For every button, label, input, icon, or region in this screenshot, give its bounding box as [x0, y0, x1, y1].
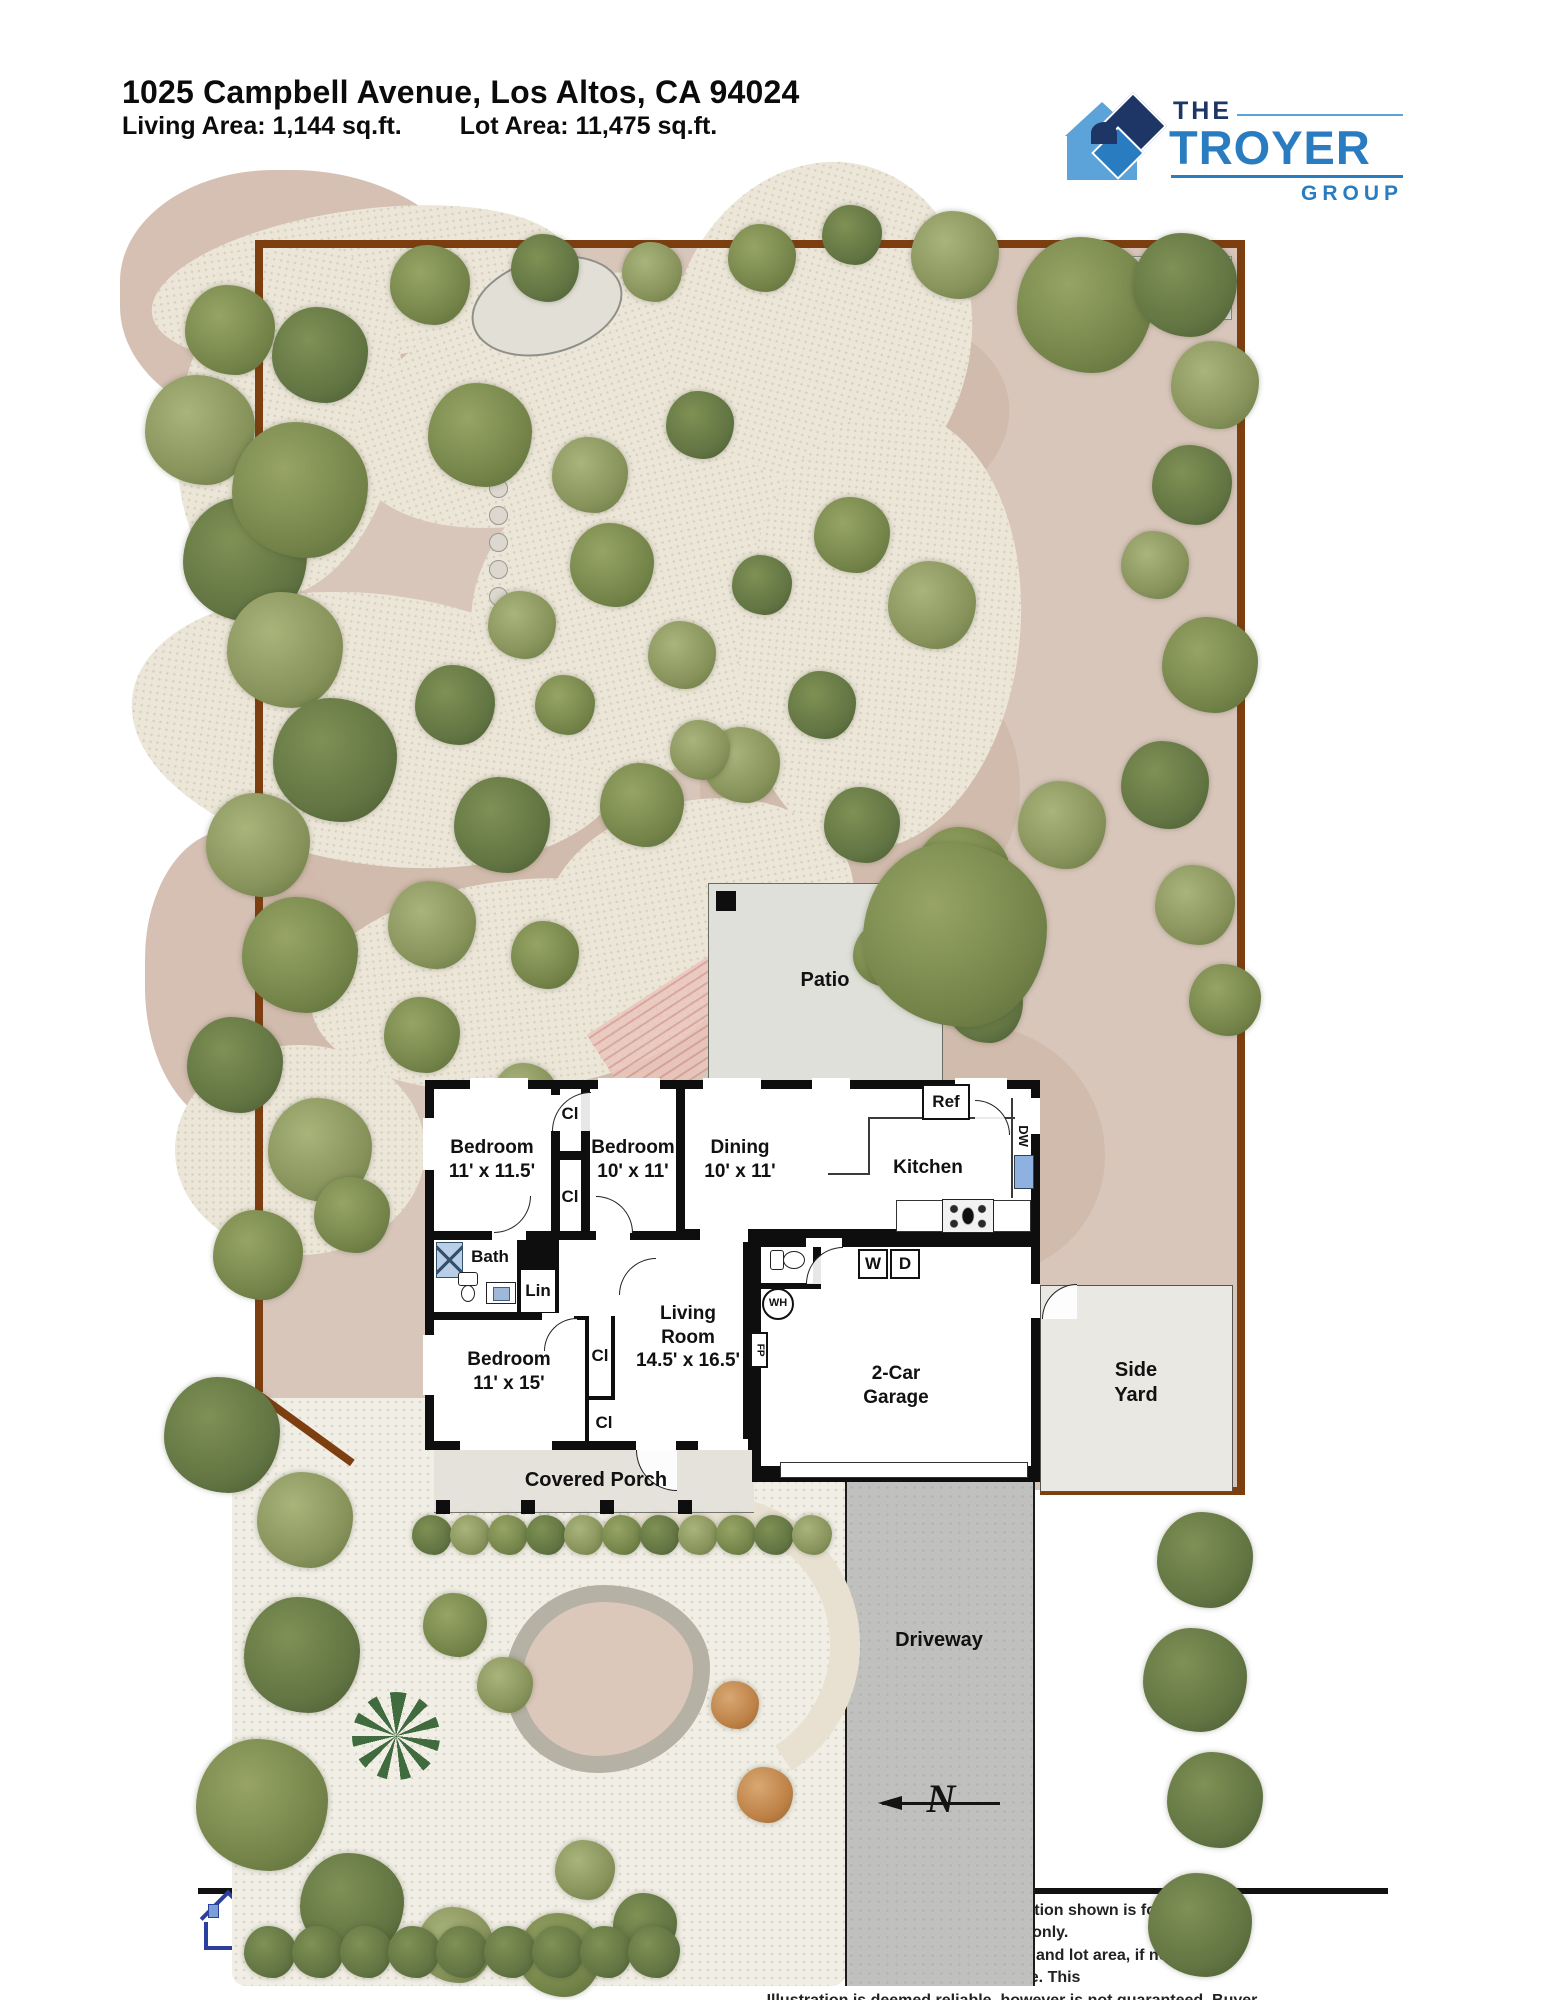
- tree-icon: [484, 1926, 536, 1978]
- tree-icon: [526, 1515, 566, 1555]
- tree-icon: [292, 1926, 344, 1978]
- tree-icon: [678, 1515, 718, 1555]
- hedge-shrub: [1143, 1628, 1247, 1732]
- tree-icon: [555, 1840, 615, 1900]
- tree-icon: [564, 1515, 604, 1555]
- tree-icon: [244, 1597, 360, 1713]
- tree-icon: [412, 1515, 452, 1555]
- tree-icon: [244, 1926, 296, 1978]
- tree-icon: [640, 1515, 680, 1555]
- hedge-shrub: [1148, 1873, 1252, 1977]
- floor-plan-page: 1025 Campbell Avenue, Los Altos, CA 9402…: [0, 0, 1545, 2000]
- tree-icon: [711, 1681, 759, 1729]
- tree-icon: [792, 1515, 832, 1555]
- tree-icon: [450, 1515, 490, 1555]
- tree-icon: [423, 1593, 487, 1657]
- tree-icon: [716, 1515, 756, 1555]
- tree-icon: [628, 1926, 680, 1978]
- tree-icon: [737, 1767, 793, 1823]
- tree-icon: [196, 1739, 328, 1871]
- tree-icon: [754, 1515, 794, 1555]
- tree-icon: [488, 1515, 528, 1555]
- tree-icon: [580, 1926, 632, 1978]
- tree-icon: [436, 1926, 488, 1978]
- tree-icon: [532, 1926, 584, 1978]
- tree-icon: [340, 1926, 392, 1978]
- hedge-shrub: [1167, 1752, 1263, 1848]
- tree-icon: [602, 1515, 642, 1555]
- site-plan-illustration: Patio Side Yard Driveway N: [0, 0, 1545, 2000]
- tree-icon: [477, 1657, 533, 1713]
- hedge-shrub: [1157, 1512, 1253, 1608]
- tree-icon: [388, 1926, 440, 1978]
